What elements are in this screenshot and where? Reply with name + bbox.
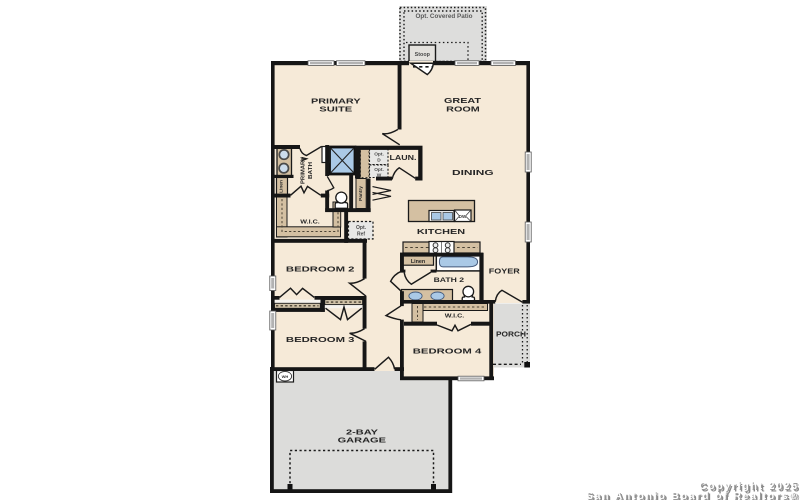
svg-text:KITCHEN: KITCHEN: [417, 227, 465, 236]
svg-text:DW: DW: [459, 214, 467, 219]
svg-text:PORCH: PORCH: [496, 329, 526, 338]
svg-text:Opt. Covered Patio: Opt. Covered Patio: [416, 14, 473, 20]
svg-text:Ref: Ref: [357, 232, 365, 238]
svg-text:W.I.C.: W.I.C.: [300, 220, 320, 226]
svg-text:DINING: DINING: [452, 168, 494, 177]
svg-text:SUITE: SUITE: [319, 104, 352, 113]
svg-text:San Antonio Board of Realtors®: San Antonio Board of Realtors®: [586, 491, 797, 500]
svg-text:Opt.: Opt.: [374, 167, 384, 173]
svg-text:BATH 2: BATH 2: [434, 277, 465, 284]
svg-text:Opt.: Opt.: [356, 225, 367, 231]
svg-text:Linen: Linen: [411, 259, 425, 265]
svg-text:Opt.: Opt.: [374, 152, 384, 158]
svg-text:BEDROOM 2: BEDROOM 2: [286, 264, 355, 273]
svg-text:W.I.C.: W.I.C.: [445, 314, 465, 320]
svg-text:GARAGE: GARAGE: [338, 435, 386, 444]
svg-text:D: D: [377, 158, 381, 164]
svg-text:LAUN.: LAUN.: [390, 155, 417, 162]
svg-text:BATH: BATH: [308, 162, 314, 179]
svg-text:Pantry: Pantry: [358, 186, 364, 201]
svg-text:BEDROOM 4: BEDROOM 4: [413, 347, 483, 356]
svg-text:PRIMARY: PRIMARY: [301, 157, 307, 184]
svg-text:FOYER: FOYER: [489, 266, 521, 275]
svg-text:Stoop: Stoop: [415, 52, 431, 58]
svg-text:ROOM: ROOM: [446, 104, 480, 113]
svg-text:BEDROOM 3: BEDROOM 3: [286, 335, 355, 344]
svg-text:WH: WH: [282, 374, 289, 379]
svg-text:Linen: Linen: [278, 180, 284, 193]
